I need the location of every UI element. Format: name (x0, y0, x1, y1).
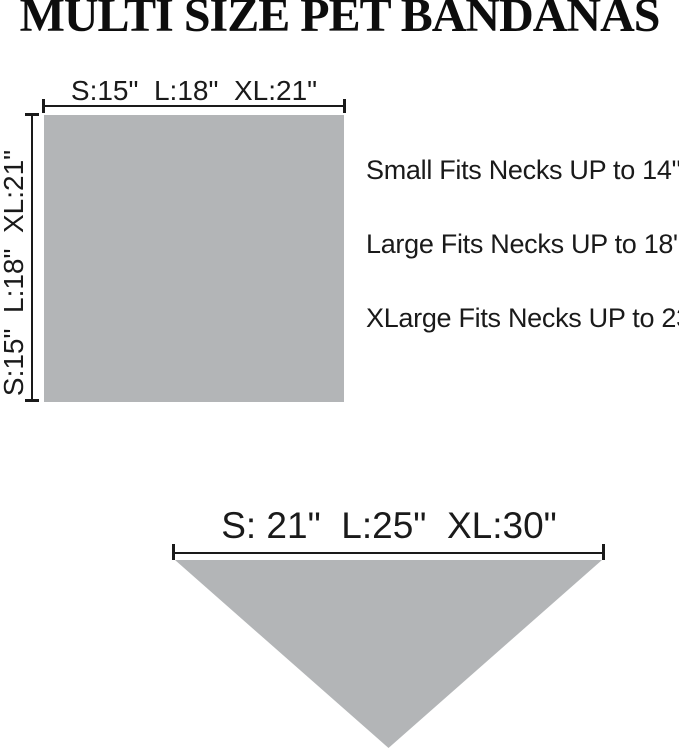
square-height-label: S:15" L:18" XL:21" (0, 150, 28, 396)
fit-note-small: Small Fits Necks UP to 14" (366, 157, 679, 184)
bandana-square-shape (44, 115, 344, 402)
fit-note-xlarge: XLarge Fits Necks UP to 23" (366, 305, 679, 332)
square-height-label-wrap: S:15" L:18" XL:21" (0, 115, 30, 403)
width-dimension-line (43, 105, 345, 107)
triangle-width-label: S: 21" L:25" XL:30" (173, 507, 605, 544)
width-dimension-tick-right (343, 99, 346, 113)
page-title: MULTI SIZE PET BANDANAS (0, 0, 679, 40)
height-dimension-tick-top (25, 113, 39, 116)
triangle-dimension-tick-left (172, 544, 175, 560)
square-width-label: S:15" L:18" XL:21" (43, 77, 345, 105)
bandana-triangle-polygon (175, 560, 602, 748)
triangle-dimension-tick-right (602, 544, 605, 560)
height-dimension-tick-bottom (25, 399, 39, 402)
bandana-triangle-shape (175, 560, 602, 749)
width-dimension-tick-left (42, 99, 45, 113)
size-chart-image: MULTI SIZE PET BANDANAS S:15" L:18" XL:2… (0, 0, 679, 751)
height-dimension-line (31, 114, 33, 402)
fit-note-large: Large Fits Necks UP to 18" (366, 231, 679, 258)
triangle-dimension-line (173, 552, 605, 554)
